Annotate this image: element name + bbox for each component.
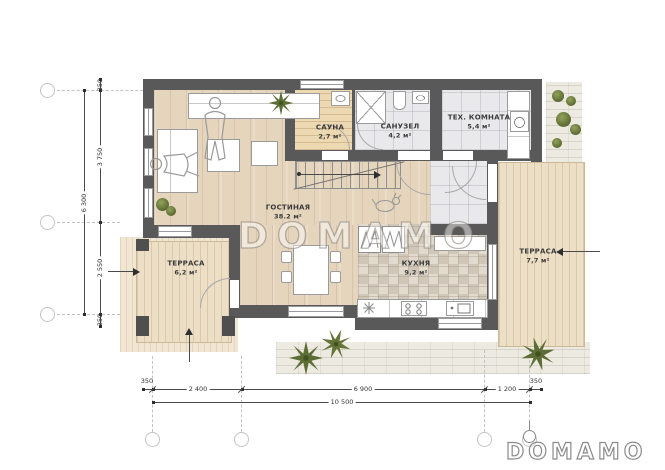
dim-label: 6 300 bbox=[80, 192, 88, 215]
dim-label: 3 750 bbox=[96, 146, 104, 169]
room-label-bathroom: САНУЗЕЛ 4,2 м² bbox=[381, 123, 420, 140]
axis-marker bbox=[40, 215, 55, 230]
entry-arrow-icon bbox=[185, 328, 193, 335]
palm-plant-icon bbox=[320, 328, 352, 360]
bush-icon bbox=[552, 138, 562, 148]
door-gap-bathroom bbox=[398, 151, 430, 160]
room-label-kitchen: КУХНЯ 9,2 м² bbox=[402, 260, 431, 277]
room-area: 9,2 м² bbox=[402, 268, 431, 276]
stove-icon bbox=[401, 301, 427, 316]
brand-logo: DOMAMO bbox=[506, 440, 646, 465]
washing-machine-icon bbox=[510, 111, 529, 132]
floor-plan: ГОСТИНАЯ 38.2 м² САУНА 2,7 м² САНУЗЕЛ 4,… bbox=[0, 0, 665, 470]
dim-dot bbox=[83, 313, 86, 316]
dining-chair bbox=[281, 271, 292, 283]
room-name: ГОСТИНАЯ bbox=[266, 204, 310, 212]
bush-icon bbox=[570, 124, 581, 135]
dimension-line bbox=[100, 79, 101, 327]
palm-plant-icon bbox=[268, 90, 294, 116]
room-area: 5,4 м² bbox=[448, 122, 511, 130]
window bbox=[144, 188, 153, 218]
axis-dash-line bbox=[57, 314, 120, 315]
window bbox=[300, 80, 344, 89]
room-area: 6,2 м² bbox=[167, 268, 204, 276]
dim-label: 350 bbox=[528, 377, 544, 385]
dim-label: 6 900 bbox=[352, 385, 375, 393]
room-area: 7,7 м² bbox=[519, 256, 556, 264]
dim-dot bbox=[529, 401, 532, 404]
brand-logo-stem bbox=[529, 421, 530, 431]
dining-chair bbox=[330, 271, 341, 283]
axis-marker bbox=[145, 432, 160, 447]
axis-dash-line bbox=[241, 356, 242, 432]
window bbox=[488, 244, 497, 300]
axis-marker bbox=[40, 83, 55, 98]
room-area: 4,2 м² bbox=[381, 131, 420, 139]
axis-marker bbox=[234, 432, 249, 447]
door-gap-tech bbox=[443, 151, 473, 160]
axis-dash-line bbox=[152, 356, 153, 432]
dim-label: 350 bbox=[96, 77, 104, 93]
shower-icon bbox=[356, 91, 386, 124]
room-name: ТЕРРАСА bbox=[167, 260, 204, 268]
axis-marker bbox=[477, 432, 492, 447]
terrace-pillar bbox=[136, 239, 149, 251]
dim-label: 350 bbox=[139, 377, 155, 385]
window bbox=[144, 108, 153, 136]
window bbox=[438, 318, 482, 329]
bush-icon bbox=[566, 96, 576, 106]
armchair bbox=[251, 141, 278, 166]
palm-plant-icon bbox=[520, 336, 556, 372]
room-name: ТЕРРАСА bbox=[519, 248, 556, 256]
axis-marker bbox=[40, 307, 55, 322]
terrace-pillar bbox=[222, 316, 235, 336]
dim-label: 350 bbox=[96, 312, 104, 328]
door-gap-terrace-left bbox=[230, 280, 239, 308]
door-gap-terrace-right bbox=[488, 164, 497, 202]
fan-icon bbox=[362, 301, 376, 315]
dim-label: 2 550 bbox=[96, 257, 104, 280]
window bbox=[158, 226, 192, 237]
stairs-direction-arrow-icon bbox=[374, 171, 381, 179]
sauna-heater-icon bbox=[331, 91, 350, 106]
person-figure bbox=[146, 138, 204, 190]
entry-arrow-line bbox=[108, 271, 136, 272]
dim-label: 1 200 bbox=[496, 385, 519, 393]
brand-logo-circle-icon bbox=[523, 430, 536, 443]
axis-dash-line bbox=[57, 222, 120, 223]
stairs-direction-line bbox=[300, 174, 376, 175]
window bbox=[288, 306, 344, 317]
room-label-tech: ТЕХ. КОМНАТА 5,4 м² bbox=[448, 114, 511, 131]
dim-dot bbox=[152, 401, 155, 404]
dim-dot bbox=[83, 89, 86, 92]
dim-dot bbox=[99, 221, 102, 224]
wall-bath-tech bbox=[430, 90, 442, 150]
dim-label: 10 500 bbox=[329, 398, 356, 406]
room-name: САНУЗЕЛ bbox=[381, 123, 420, 131]
room-area: 2,7 м² bbox=[316, 132, 344, 140]
dog-figure bbox=[370, 192, 404, 218]
dim-dot bbox=[540, 388, 543, 391]
wall-sauna-bath bbox=[352, 90, 355, 150]
room-name: КУХНЯ bbox=[402, 260, 431, 268]
watermark: DOMAMO bbox=[238, 216, 483, 257]
axis-dash-line bbox=[484, 350, 485, 432]
room-label-sauna: САУНА 2,7 м² bbox=[316, 124, 344, 141]
room-label-terrace-left: ТЕРРАСА 6,2 м² bbox=[167, 260, 204, 277]
toilet-icon bbox=[393, 91, 406, 110]
door-gap-sauna bbox=[322, 151, 348, 160]
entry-arrow-line bbox=[189, 334, 190, 362]
room-name: САУНА bbox=[316, 124, 344, 132]
room-name: ТЕХ. КОМНАТА bbox=[448, 114, 511, 122]
dim-dot bbox=[142, 388, 145, 391]
entry-arrow-line bbox=[562, 251, 600, 252]
room-label-terrace-right: ТЕРРАСА 7,7 м² bbox=[519, 248, 556, 265]
bush-icon bbox=[552, 90, 564, 102]
bush-icon bbox=[556, 112, 571, 127]
staircase bbox=[295, 161, 401, 189]
dim-label: 2 400 bbox=[187, 385, 210, 393]
entry-arrow-icon bbox=[133, 268, 140, 276]
bathroom-sink-icon bbox=[412, 91, 429, 104]
terrace-pillar bbox=[136, 316, 149, 336]
kitchen-sink-icon bbox=[446, 301, 474, 316]
bush-icon bbox=[166, 206, 176, 216]
entry-arrow-icon bbox=[556, 248, 563, 256]
